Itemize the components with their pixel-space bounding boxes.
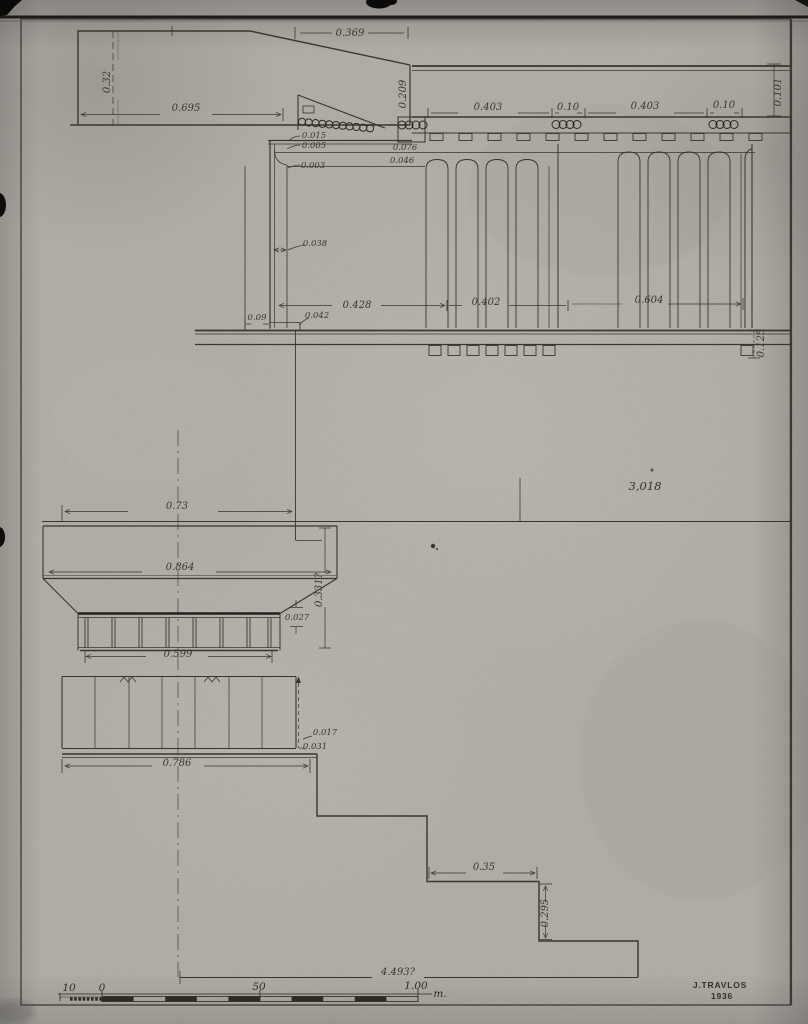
scanned-drawing-page: 0.32 0.369 0.695 0.209 0.015 0.005 0.003…: [0, 0, 808, 1024]
grain-overlay: [0, 0, 808, 1024]
drawing-canvas: 0.32 0.369 0.695 0.209 0.015 0.005 0.003…: [0, 0, 808, 1024]
